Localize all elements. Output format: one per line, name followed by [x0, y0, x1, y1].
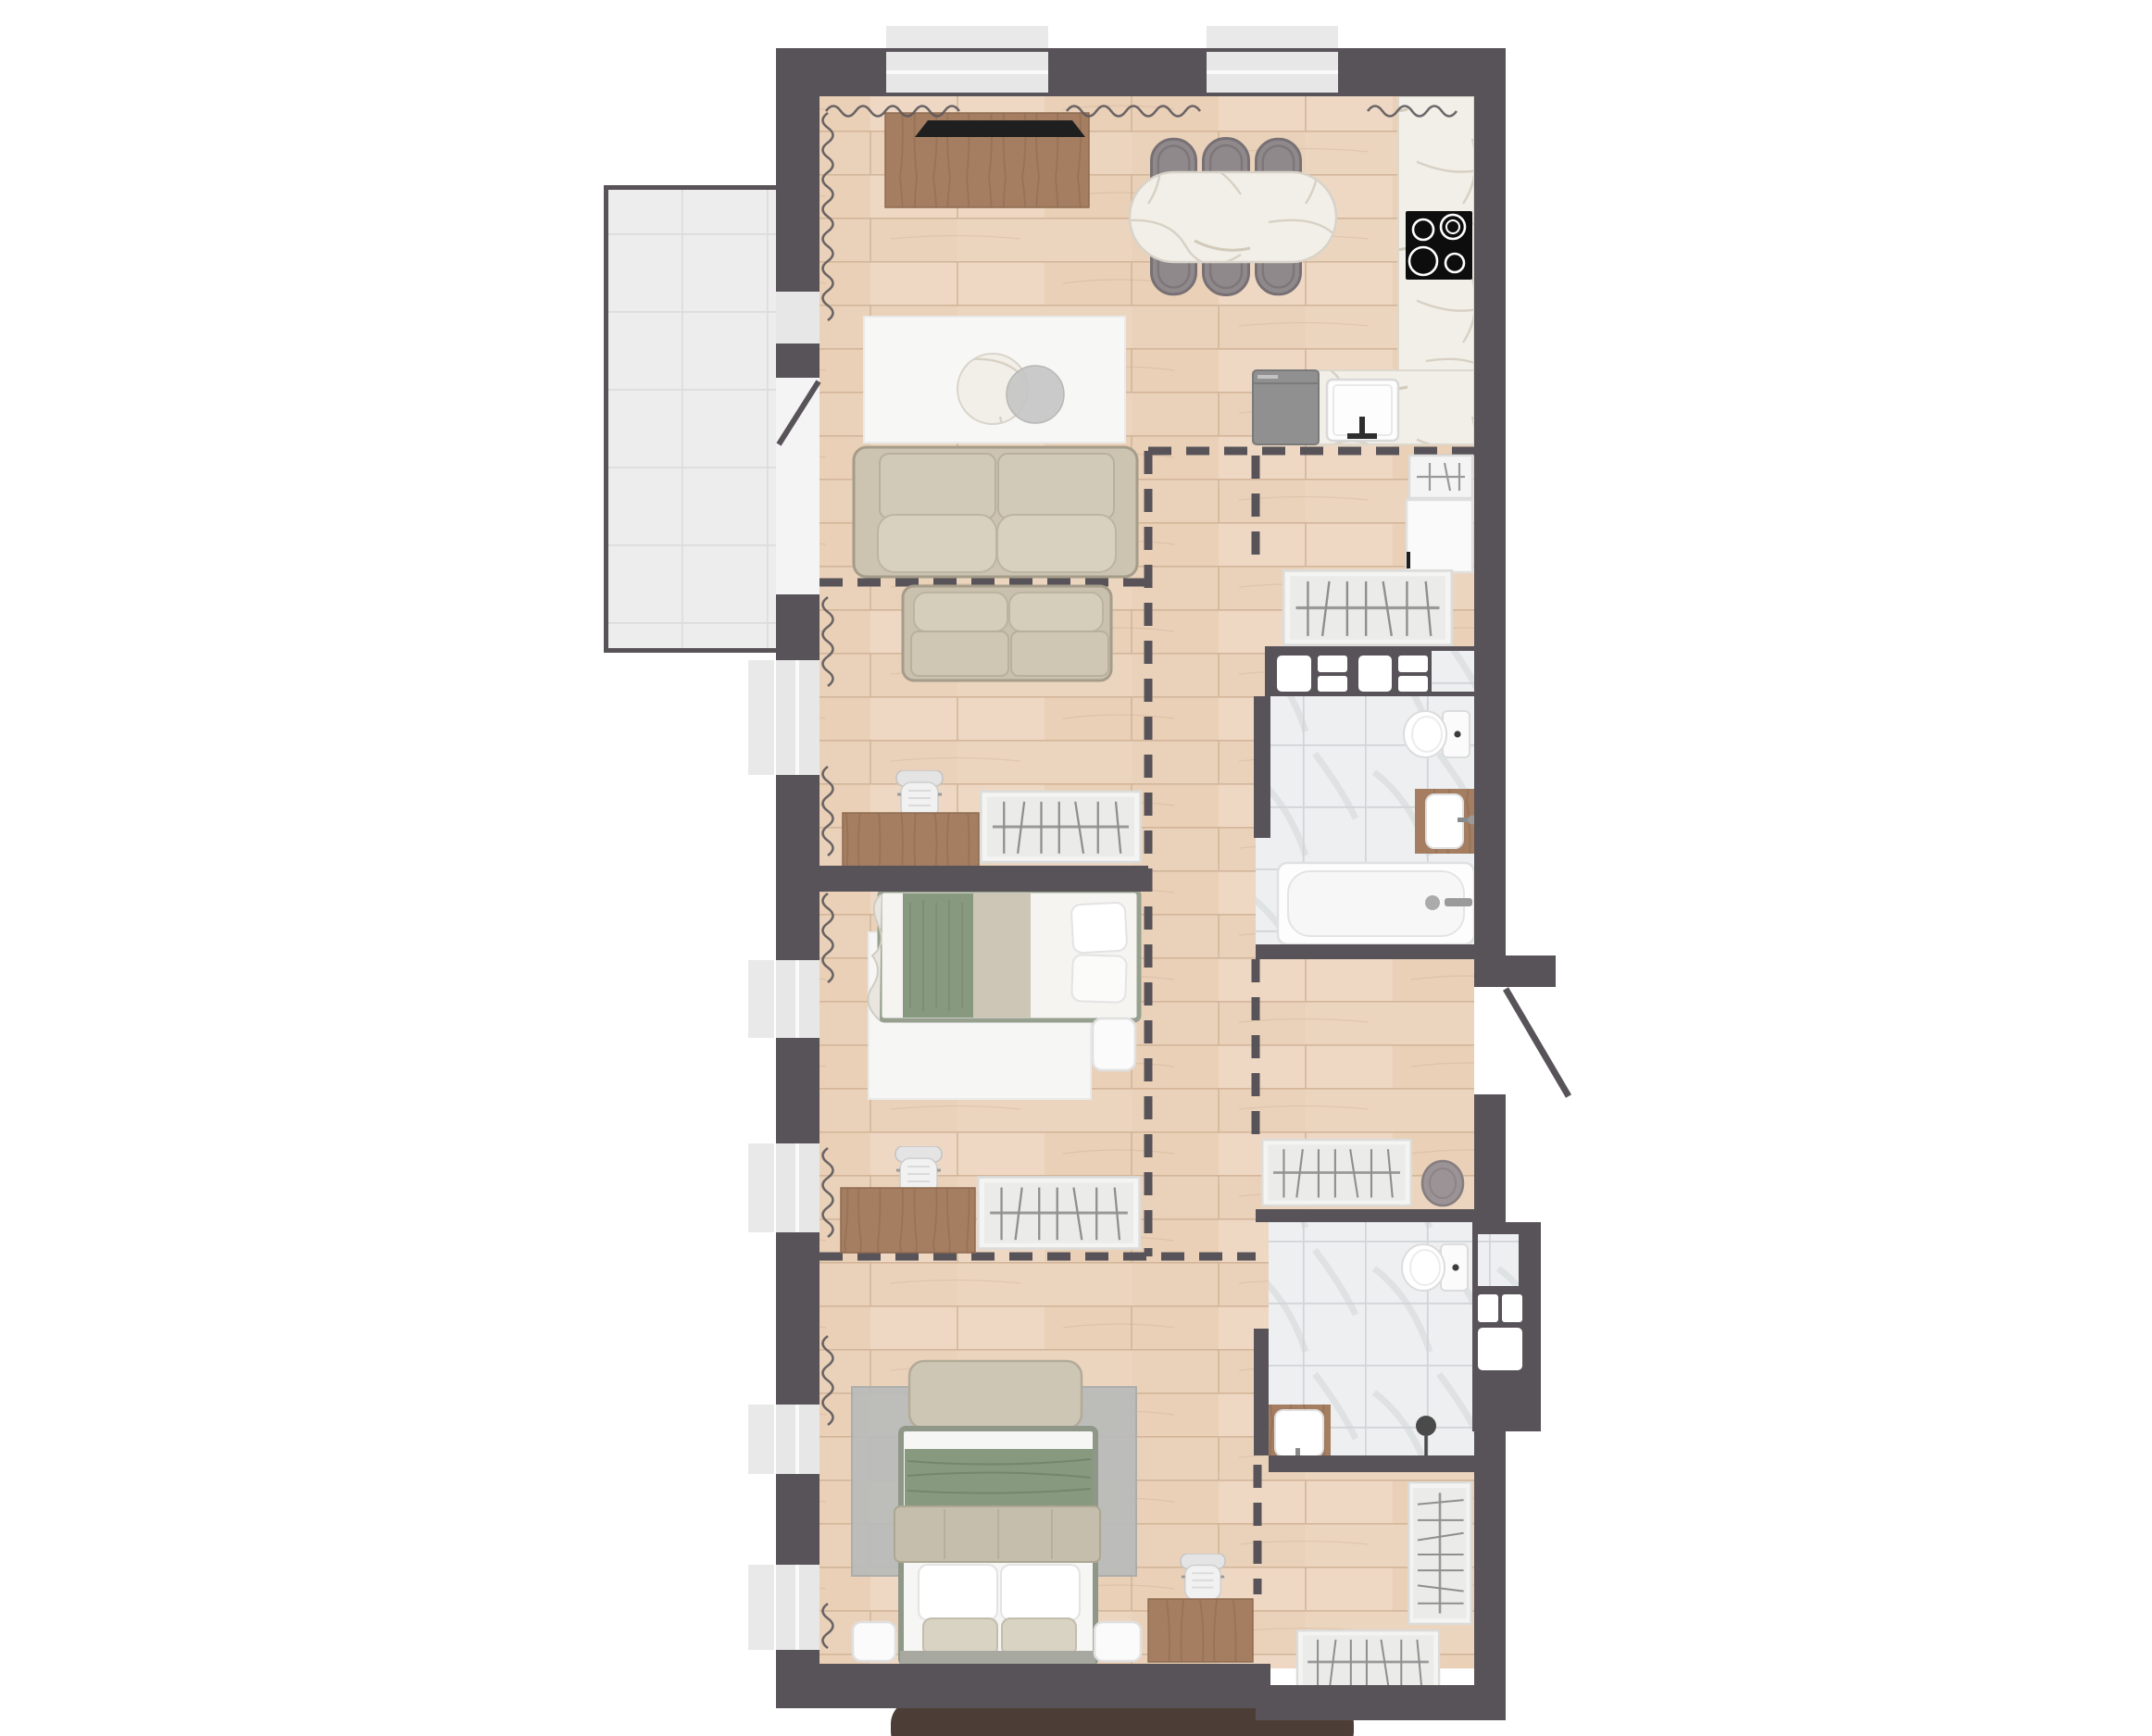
cooktop — [1406, 211, 1472, 280]
tall-cabinet — [1407, 500, 1472, 572]
toilet — [1402, 1244, 1468, 1291]
sofa-seat-cushion — [998, 454, 1114, 518]
window-sill — [748, 1405, 774, 1474]
wardrobe — [978, 1178, 1139, 1249]
window-sill — [886, 26, 1048, 48]
fridge-handle — [1257, 375, 1278, 379]
double-bed — [895, 1429, 1100, 1666]
appliance-unit — [1409, 456, 1472, 498]
wall-bath-second-left — [1254, 1329, 1269, 1455]
tub-drain — [1425, 895, 1440, 910]
vanity — [1415, 789, 1477, 854]
wardrobe — [981, 792, 1140, 862]
bed-bench — [909, 1361, 1082, 1429]
closet-linear — [1283, 570, 1452, 644]
bed-duvet — [895, 1506, 1100, 1562]
toilet — [1404, 711, 1470, 757]
bed-pillow — [919, 1565, 997, 1620]
wall-entry-stub — [1474, 955, 1556, 987]
loveseat-back-cushion — [1009, 593, 1103, 631]
nightstand — [1093, 1018, 1135, 1070]
loveseat-seat — [1011, 631, 1108, 676]
wall-right-lower — [1474, 1431, 1506, 1720]
kitchen-sink — [1327, 380, 1398, 441]
niche-shelf — [1478, 1328, 1522, 1370]
office-chair — [895, 1146, 942, 1194]
wall-bath-main-left — [1254, 696, 1270, 838]
bed-green-quilt — [905, 1449, 1093, 1506]
window-sill — [748, 1143, 774, 1232]
cabinet-mark — [1407, 552, 1410, 568]
wall-bottom-right — [1256, 1685, 1506, 1720]
window-sill — [1207, 26, 1338, 48]
nightstand — [1095, 1622, 1141, 1661]
balcony-floor — [604, 185, 776, 653]
sofa-back-cushion — [878, 515, 996, 572]
loveseat — [903, 586, 1111, 681]
desk — [1148, 1599, 1253, 1662]
entry-door-leaf — [1506, 989, 1569, 1096]
wall-hall-bath — [1256, 1209, 1474, 1222]
bed-pillow — [1001, 1565, 1080, 1620]
office-chair — [896, 770, 943, 818]
wall-bath-main-bottom — [1256, 944, 1474, 959]
window-sill — [748, 960, 774, 1038]
closet-horizontal — [1297, 1630, 1439, 1693]
bed-pillow-lower — [1002, 1618, 1076, 1655]
wall-study-bedroom — [820, 866, 1148, 892]
loveseat-seat — [911, 631, 1008, 676]
nightstand — [853, 1622, 895, 1661]
floor-plan-svg — [0, 0, 2152, 1736]
dining-table — [1130, 172, 1336, 262]
bed-pillow — [1071, 955, 1127, 1003]
office-chair — [1181, 1554, 1225, 1600]
bed-pillow — [1071, 903, 1128, 954]
bed-foot-band — [900, 1651, 1095, 1666]
loveseat-back-cushion — [914, 593, 1007, 631]
window-sill — [748, 1565, 774, 1650]
faucet-bar — [1347, 433, 1377, 439]
coffee-table-gray — [1007, 366, 1064, 423]
tv-screen — [915, 120, 1085, 137]
niche-shelf — [1502, 1294, 1522, 1322]
closet-vertical — [1408, 1482, 1470, 1624]
wall-right-upper — [1474, 96, 1506, 955]
bed-duvet — [973, 893, 1031, 1018]
window-left — [776, 292, 820, 343]
bed-pillow-lower — [923, 1618, 997, 1655]
hall-closet — [1262, 1140, 1411, 1205]
niche-marble — [1478, 1234, 1519, 1286]
wall-right-hall — [1474, 1094, 1506, 1222]
wall-bottom-left — [776, 1664, 1270, 1708]
wall-bath-second-bottom — [1269, 1455, 1506, 1472]
desk — [841, 1188, 975, 1253]
single-bed — [869, 891, 1140, 1020]
fridge — [1253, 370, 1319, 444]
wall-top — [776, 48, 1506, 96]
tub-faucet — [1445, 898, 1472, 906]
window-sill — [748, 660, 774, 775]
sofa-back-cushion — [997, 515, 1116, 572]
bathtub — [1278, 863, 1474, 944]
floor-plan-page — [0, 0, 2152, 1736]
niche-shelf — [1478, 1294, 1498, 1322]
sofa-seat-cushion — [880, 454, 995, 518]
sofa-main — [854, 447, 1137, 577]
